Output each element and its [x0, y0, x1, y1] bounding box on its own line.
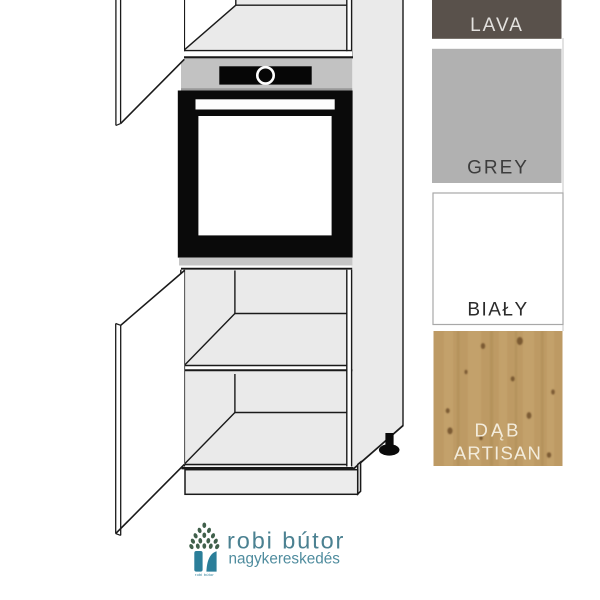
svg-text:nagykereskedés: nagykereskedés	[229, 550, 341, 567]
svg-text:DĄB: DĄB	[474, 420, 521, 441]
svg-text:LAVA: LAVA	[470, 15, 524, 36]
svg-text:BIAŁY: BIAŁY	[467, 300, 528, 321]
svg-text:robi bútor: robi bútor	[195, 572, 214, 577]
svg-text:ARTISAN: ARTISAN	[454, 443, 542, 464]
svg-text:GREY: GREY	[467, 158, 529, 179]
